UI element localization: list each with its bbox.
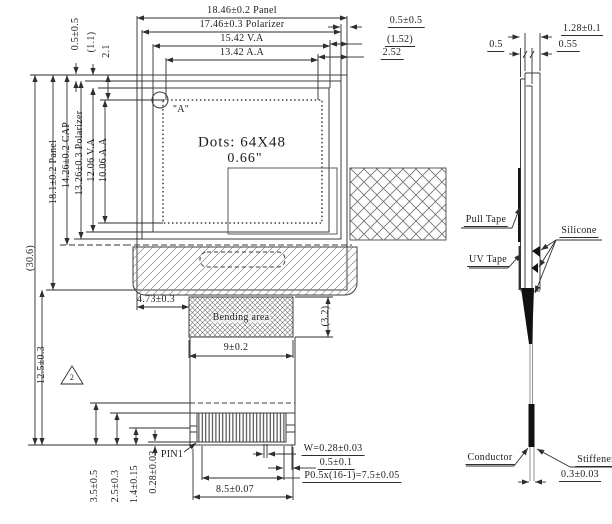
dim-va-width: 15.42 V.A	[220, 34, 263, 44]
dim-aa-width: 13.42 A.A	[220, 48, 264, 58]
dim-right-va-inset: (1.52)	[385, 35, 415, 47]
stiffener-label: Stiffener	[575, 455, 612, 467]
silicone-label: Silicone	[559, 226, 598, 238]
detail-a-label: "A"	[173, 105, 189, 115]
dim-side-total-thickness: 1.28±0.1	[561, 24, 603, 36]
bending-area-label: Bending area	[212, 313, 271, 323]
pin1-label: PIN1	[161, 450, 183, 460]
dim-aa-height: 10.06 A.A	[99, 138, 109, 182]
dim-pad-width: W=0.28±0.03	[302, 444, 365, 456]
dim-side-left-thickness: 0.5	[487, 40, 504, 52]
dim-stiffener-height: 3.5±0.5	[90, 470, 100, 503]
dim-bend-width: 9±0.2	[224, 343, 249, 353]
dim-polarizer-height: 13.26±0.3 Polarizer	[75, 111, 85, 196]
dim-right-edge-gap: 0.5±0.5	[388, 16, 425, 28]
display-size-label: 0.66"	[227, 152, 262, 166]
pull-tape-layer	[518, 168, 521, 242]
dim-cap-height: 14.26±0.2 CAP	[62, 122, 72, 188]
dim-exposed-height: 1.4±0.15	[130, 465, 140, 503]
dim-topleft-aa-offset: 2.1	[102, 44, 112, 57]
dim-fpc-thickness: 0.3±0.03	[559, 470, 601, 482]
conductor-label: Conductor	[466, 453, 515, 465]
silicone-fillet	[521, 288, 534, 344]
uv-tape-label: UV Tape	[467, 255, 509, 267]
note-triangle-2: 2	[70, 374, 74, 382]
dim-panel-width: 18.46±0.2 Panel	[207, 6, 277, 16]
side-view	[518, 73, 540, 481]
stiffener-layer	[529, 404, 535, 447]
silicone-dot	[532, 246, 540, 257]
dim-side-right-thickness: 0.55	[557, 40, 580, 52]
dim-pin-height: 2.5±0.3	[111, 470, 121, 503]
pull-tape-label: Pull Tape	[464, 215, 508, 227]
dim-bend-offset: 4.73±0.3	[137, 295, 175, 305]
mechanical-drawing-sheet: 18.46±0.2 Panel 17.46±0.3 Polarizer 15.4…	[0, 0, 612, 524]
display-dots-label: Dots: 64X48	[198, 136, 286, 151]
front-view	[125, 75, 446, 445]
dim-va-height: 12.06 V.A	[87, 138, 97, 181]
dim-topleft-pol-offset: 0.5±0.5	[71, 18, 81, 51]
dim-pin-pitch: P0.5x(16-1)=7.5±0.05	[302, 471, 401, 483]
dim-connector-width: 8.5±0.07	[216, 485, 254, 495]
dim-right-aa-inset: 2.52	[381, 48, 404, 60]
dim-bend-height: (3.2)	[321, 306, 331, 327]
dim-total-height: (30.6)	[26, 245, 36, 271]
dim-polarizer-width: 17.46±0.3 Polarizer	[200, 20, 285, 30]
dim-bottom-margin: 0.28±0.03	[149, 450, 159, 493]
uv-tape-layer	[519, 246, 521, 290]
dim-tail-height: 12.5±0.3	[37, 346, 47, 384]
dim-panel-height: 18.1±0.2 Panel	[49, 140, 59, 204]
dim-topleft-va-offset: (1.1)	[87, 32, 97, 53]
dim-edge-margin: 0.5±0.1	[318, 458, 355, 470]
